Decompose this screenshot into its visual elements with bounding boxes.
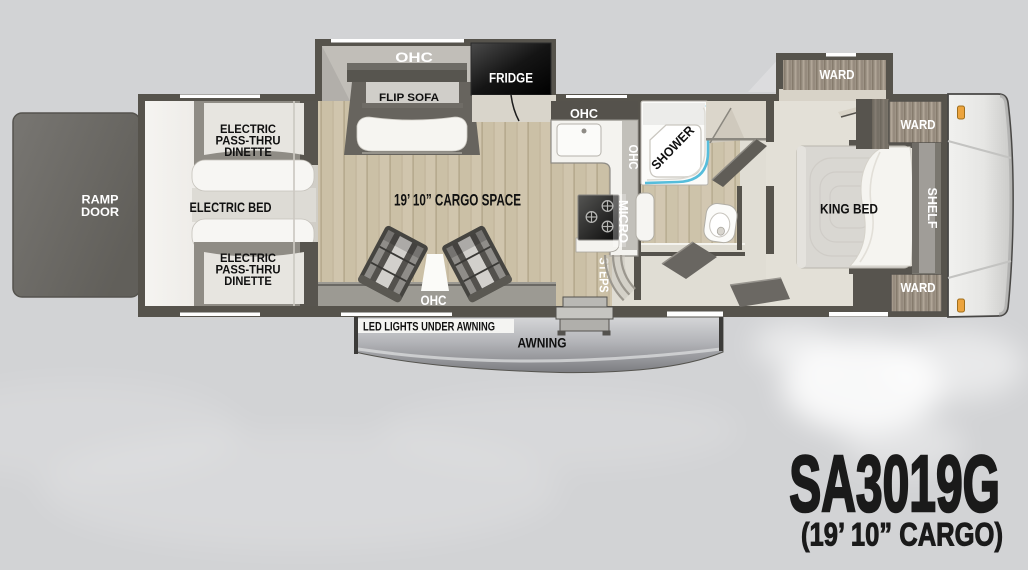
svg-text:DOOR: DOOR	[81, 206, 120, 219]
svg-text:ELECTRIC: ELECTRIC	[220, 124, 276, 136]
svg-text:DINETTE: DINETTE	[224, 147, 272, 159]
svg-text:ELECTRIC: ELECTRIC	[220, 253, 276, 265]
svg-text:ELECTRIC BED: ELECTRIC BED	[190, 199, 272, 215]
svg-text:OHC: OHC	[421, 292, 447, 308]
svg-text:OHC: OHC	[626, 145, 640, 170]
svg-text:OHC: OHC	[570, 106, 599, 121]
svg-text:WARD: WARD	[820, 67, 855, 82]
svg-text:SA3019G: SA3019G	[789, 438, 1000, 528]
svg-text:AWNING: AWNING	[518, 336, 567, 351]
svg-text:SHELF: SHELF	[925, 188, 940, 229]
svg-text:PASS-THRU: PASS-THRU	[216, 136, 281, 148]
svg-text:19’ 10” CARGO SPACE: 19’ 10” CARGO SPACE	[394, 191, 521, 210]
svg-text:LED LIGHTS UNDER AWNING: LED LIGHTS UNDER AWNING	[363, 320, 495, 334]
svg-text:WARD: WARD	[901, 280, 936, 295]
svg-text:FRIDGE: FRIDGE	[489, 71, 533, 86]
svg-text:KING BED: KING BED	[820, 201, 878, 217]
svg-text:RAMP: RAMP	[82, 194, 119, 207]
svg-text:(19’ 10” CARGO): (19’ 10” CARGO)	[801, 518, 1003, 553]
svg-text:DINETTE: DINETTE	[224, 276, 272, 288]
svg-text:OHC: OHC	[395, 50, 433, 65]
svg-text:WARD: WARD	[901, 117, 936, 132]
svg-text:FLIP SOFA: FLIP SOFA	[379, 92, 439, 104]
svg-text:MICRO: MICRO	[616, 200, 630, 243]
svg-text:PASS-THRU: PASS-THRU	[216, 265, 281, 277]
